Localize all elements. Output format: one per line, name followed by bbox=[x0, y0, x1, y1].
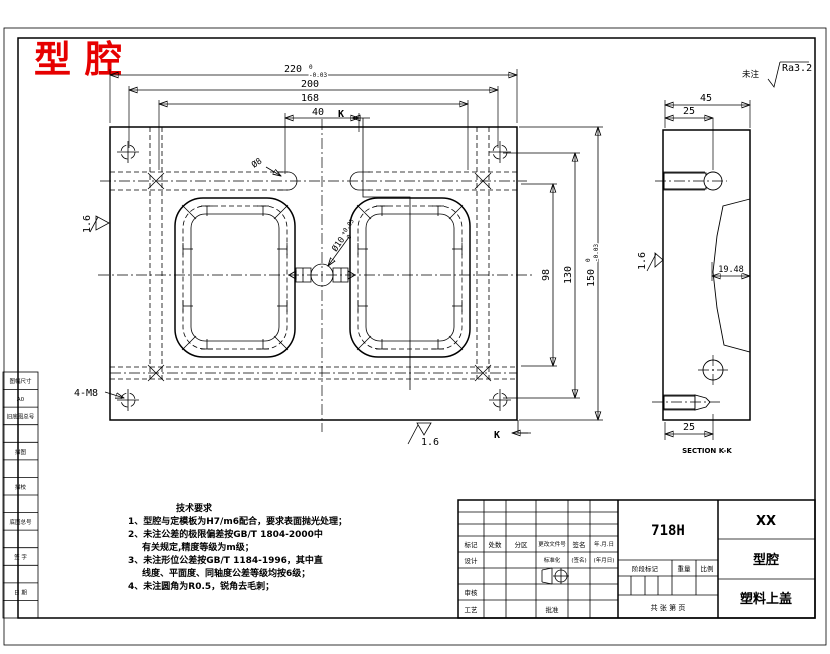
tb-design: 设计 bbox=[465, 556, 479, 565]
dim-45: 45 bbox=[700, 93, 712, 104]
dim-150: 150 bbox=[586, 269, 597, 287]
tb-stage-mark: 阶段标记 bbox=[632, 564, 659, 573]
dim-168: 168 bbox=[301, 93, 319, 104]
tb-header-count: 处数 bbox=[489, 540, 503, 549]
margin-date-label: 日 期 bbox=[14, 589, 27, 596]
finish-symbol-left-icon: 1.6 bbox=[82, 215, 109, 233]
title-block: 标记 处数 分区 更改文件号 签名 年.月.日 设计 标准化 (签名) (年月日… bbox=[458, 500, 815, 618]
cavity-profile bbox=[713, 199, 750, 352]
dim-40: 40 bbox=[312, 107, 324, 118]
cad-drawing-sheet: 型腔 未注 Ra3.2 bbox=[0, 0, 830, 654]
dim-19-48: 19.48 bbox=[718, 265, 744, 275]
finish-section-value: 1.6 bbox=[637, 252, 648, 270]
tb-header-mark: 标记 bbox=[465, 540, 479, 549]
tb-scale: 比例 bbox=[701, 564, 714, 573]
tb-header-doc: 更改文件号 bbox=[538, 540, 566, 548]
tb-standardize: 标准化 bbox=[544, 556, 561, 564]
dim-150-tol-lower: -0.03 bbox=[593, 244, 600, 262]
cavity-pocket-left bbox=[175, 198, 295, 357]
tb-header-date: 年.月.日 bbox=[594, 540, 614, 548]
plate-outline bbox=[110, 127, 517, 420]
dia8-callout: Ø8 bbox=[249, 156, 281, 176]
roughness-note-value: Ra3.2 bbox=[782, 63, 812, 74]
page-title: 型腔 bbox=[34, 37, 136, 81]
tb-weight: 重量 bbox=[678, 565, 692, 573]
dim-98: 98 bbox=[541, 269, 552, 281]
dim-150-tol-upper: 0 bbox=[585, 258, 592, 262]
tb-date-hint: (年月日) bbox=[594, 556, 615, 564]
tech-line-2: 2、未注公差的极限偏差按GB/T 1804-2000中 bbox=[128, 528, 323, 540]
tb-sign-hint: (签名) bbox=[571, 556, 586, 564]
technical-requirements: 技术要求 1、型腔与定模板为H7/m6配合，要求表面抛光处理； 2、未注公差的极… bbox=[128, 502, 347, 592]
margin-old-drawing-no: 旧底图总号 bbox=[7, 413, 35, 421]
drawing-canvas: 型腔 未注 Ra3.2 bbox=[0, 0, 830, 654]
section-caption: SECTION K-K bbox=[682, 447, 732, 455]
dia8-label: Ø8 bbox=[249, 156, 264, 171]
finish-left-value: 1.6 bbox=[82, 215, 93, 233]
finish-symbol-section-icon: 1.6 bbox=[637, 252, 663, 271]
section-label-k-bottom: K bbox=[494, 430, 500, 441]
tb-process: 工艺 bbox=[465, 606, 479, 614]
dim-25-top: 25 bbox=[683, 106, 695, 117]
dim-220-tol-lower: -0.03 bbox=[309, 72, 327, 79]
section-dimensions: 45 25 19.48 25 bbox=[665, 93, 750, 440]
roughness-note-prefix: 未注 bbox=[742, 69, 760, 80]
tb-sheet-count: 共 张 第 页 bbox=[651, 603, 686, 612]
margin-sheet-size-label: 图幅尺寸 bbox=[9, 377, 32, 385]
margin-signature-label: 签 字 bbox=[14, 553, 27, 561]
finish-bottom-value: 1.6 bbox=[421, 437, 439, 448]
margin-trace-check-label: 描校 bbox=[15, 483, 27, 491]
main-view: K K 1.6 1.6 Ø8 Ø10 bbox=[74, 109, 532, 448]
tech-line-4: 3、未注形位公差按GB/T 1184-1996，其中直 bbox=[128, 554, 323, 566]
thread-callout: 4-M8 bbox=[74, 388, 124, 399]
tb-product-name: 塑料上盖 bbox=[740, 591, 792, 607]
general-roughness-note: 未注 Ra3.2 bbox=[742, 62, 812, 87]
left-margin-strip: 图幅尺寸 A0 旧底图总号 描图 描校 底图总号 签 字 日 期 bbox=[3, 372, 38, 618]
dim-200: 200 bbox=[301, 79, 319, 90]
tb-header-zone: 分区 bbox=[515, 540, 529, 549]
projection-symbol-icon bbox=[542, 568, 569, 584]
margin-drawing-no: 底图总号 bbox=[9, 518, 32, 526]
margin-sheet-size-value: A0 bbox=[17, 397, 25, 403]
tech-heading: 技术要求 bbox=[176, 502, 213, 514]
dim-25-bottom: 25 bbox=[683, 422, 695, 433]
section-view: 1.6 SECTION K-K bbox=[637, 130, 750, 455]
tb-material: 718H bbox=[651, 523, 685, 539]
tech-line-6: 4、未注圆角为R0.5，锐角去毛刺； bbox=[128, 580, 274, 592]
tech-line-1: 1、型腔与定模板为H7/m6配合，要求表面抛光处理； bbox=[128, 515, 347, 527]
tech-line-3: 有关规定,精度等级为m级； bbox=[142, 541, 254, 553]
corner-screw-holes bbox=[117, 141, 511, 411]
tb-approve: 批准 bbox=[546, 605, 560, 614]
dia10-label: Ø10 bbox=[329, 235, 347, 254]
finish-symbol-bottom-icon: 1.6 bbox=[408, 423, 439, 448]
tech-line-5: 线度、平面度、同轴度公差等级均按6级； bbox=[142, 567, 310, 579]
tb-part-name: 型腔 bbox=[753, 552, 779, 568]
sheet-border bbox=[4, 28, 826, 645]
dim-220: 220 bbox=[284, 64, 302, 75]
thread-label: 4-M8 bbox=[74, 388, 98, 399]
tb-header-sign: 签名 bbox=[573, 540, 586, 549]
dim-130: 130 bbox=[563, 266, 574, 284]
tb-company: XX bbox=[756, 514, 776, 529]
tb-check: 审核 bbox=[465, 588, 479, 597]
dia10-tol-upper: +0.05 bbox=[340, 218, 356, 237]
dim-220-tol-upper: 0 bbox=[309, 64, 313, 71]
margin-trace-label: 描图 bbox=[15, 448, 27, 456]
dia10-callout: Ø10 +0.05 0 bbox=[328, 218, 362, 266]
